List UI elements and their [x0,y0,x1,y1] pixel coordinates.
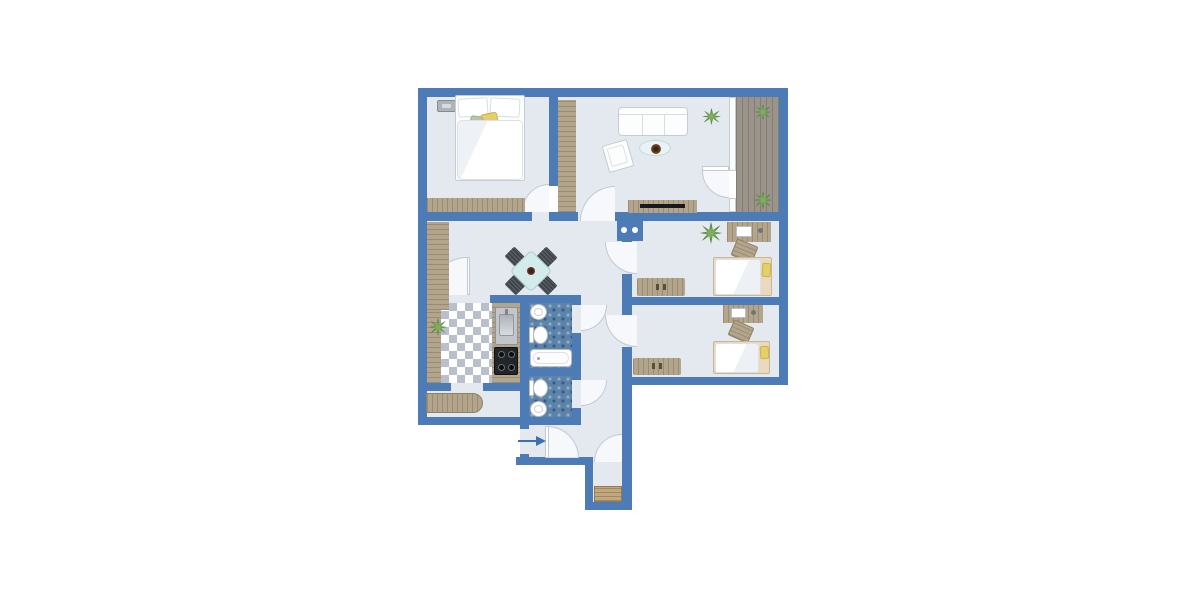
wall-bedroom-tl-cap [549,212,578,221]
washbasin-bowl [534,405,543,413]
wall-kitchen-bottom-b [483,383,520,391]
bedroom-top-left-door-gap [532,212,549,221]
sideboard-handles [652,363,655,369]
balcony-decking [736,97,779,212]
hall-wardrobe [427,222,449,310]
doormat [594,486,622,502]
desk-laptop [736,226,752,237]
bedroom-r1-desk [727,222,771,242]
bed-duvet [715,343,759,373]
bed-duvet [715,259,761,295]
burner-icon [498,351,505,358]
burner-icon [498,364,505,371]
wall-bedroom-tl-bottom [418,212,532,221]
wall-bedroom-r2-bottom [623,377,788,385]
sideboard-handles [656,284,659,290]
utility-bench [426,393,483,413]
wall-corridor-bottom [585,502,632,510]
kitchen-sink-basin [499,314,514,336]
kitchen-sink [495,307,518,345]
kitchen-checkered-floor [441,303,492,383]
wall-bedrooms-divider [632,297,788,305]
dot-icon [632,227,638,233]
sofa-backrest [619,108,687,115]
bedroom-r1-bed [713,257,772,296]
wall-bedroom-living-divider [549,88,558,186]
kitchen-door-gap [448,295,490,303]
wall-hallway-right-b [622,274,632,315]
balcony-partition-bottom [729,198,736,212]
burner-icon [508,364,515,371]
balcony-partition-top [729,97,736,171]
bathtub [530,349,572,367]
bathroom-toilet [529,326,549,344]
desk-item [758,228,763,233]
wall-living-bottom [615,212,788,221]
washbasin-bowl [534,308,543,316]
stove [494,347,518,375]
bedroom-r2-desk [723,305,763,323]
desk-laptop [731,308,746,318]
living-wardrobe [558,100,576,212]
armchair-cushion [607,144,629,167]
wall-block-with-dots [617,221,643,241]
tv-lowboard [628,200,697,213]
bedroom-r1-sideboard [637,278,685,296]
accent-pillow-yellow [762,263,772,278]
entry-arrow-line [518,440,538,442]
wall-bath-right-a [572,295,581,305]
coffee-table [639,140,671,156]
wall-bath-right-b [572,333,581,380]
wall-vestibule-bottom [516,457,593,465]
toilet-bowl [533,379,548,397]
balcony-door-leaf [702,166,729,171]
wc-door-gap [572,380,581,408]
accent-pillow-yellow [760,346,770,360]
burner-icon [508,351,515,358]
bedroom-r2-bed [713,341,770,374]
wall-left [418,88,427,425]
coffee-table-plant [651,144,661,154]
sofa-seam [642,115,643,135]
wall-picture-inner [442,104,451,108]
floor-plan [418,88,788,510]
desk-item [751,310,756,315]
entry-arrow-head [536,436,546,446]
bed-duvet [457,120,523,180]
sofa-seam [664,115,665,135]
kitchen-door-leaf [467,257,470,295]
dot-icon [621,227,627,233]
kitchen-counter-left [427,303,441,383]
bathtub-drain [537,357,540,360]
bedroom-r2-sideboard [633,358,681,375]
bedroom-tl-dresser [427,198,525,212]
wall-lower-bottom [418,417,581,425]
sofa [618,107,688,136]
wall-bath-wc-divider [529,368,572,376]
wall-kitchen-bath-divider [520,295,529,425]
tv-screen [640,204,685,208]
wall-vestibule-stub-top [520,425,529,429]
double-bed [455,95,525,181]
kitchen-faucet [505,309,508,315]
wc-toilet [529,379,549,397]
toilet-bowl [533,326,548,344]
bathroom-washbasin [530,304,547,320]
wc-washbasin [530,401,547,417]
wall-kitchen-top-b [490,295,580,303]
bathroom-door-gap [572,305,581,333]
entry-arrow-icon [518,435,548,447]
wall-picture [437,100,456,112]
kitchen-lower-gap [451,383,483,391]
wall-hallway-right-c [622,347,632,510]
wall-kitchen-bottom-a [418,383,451,391]
wall-right [779,88,788,385]
dining-centerpiece [527,267,535,275]
